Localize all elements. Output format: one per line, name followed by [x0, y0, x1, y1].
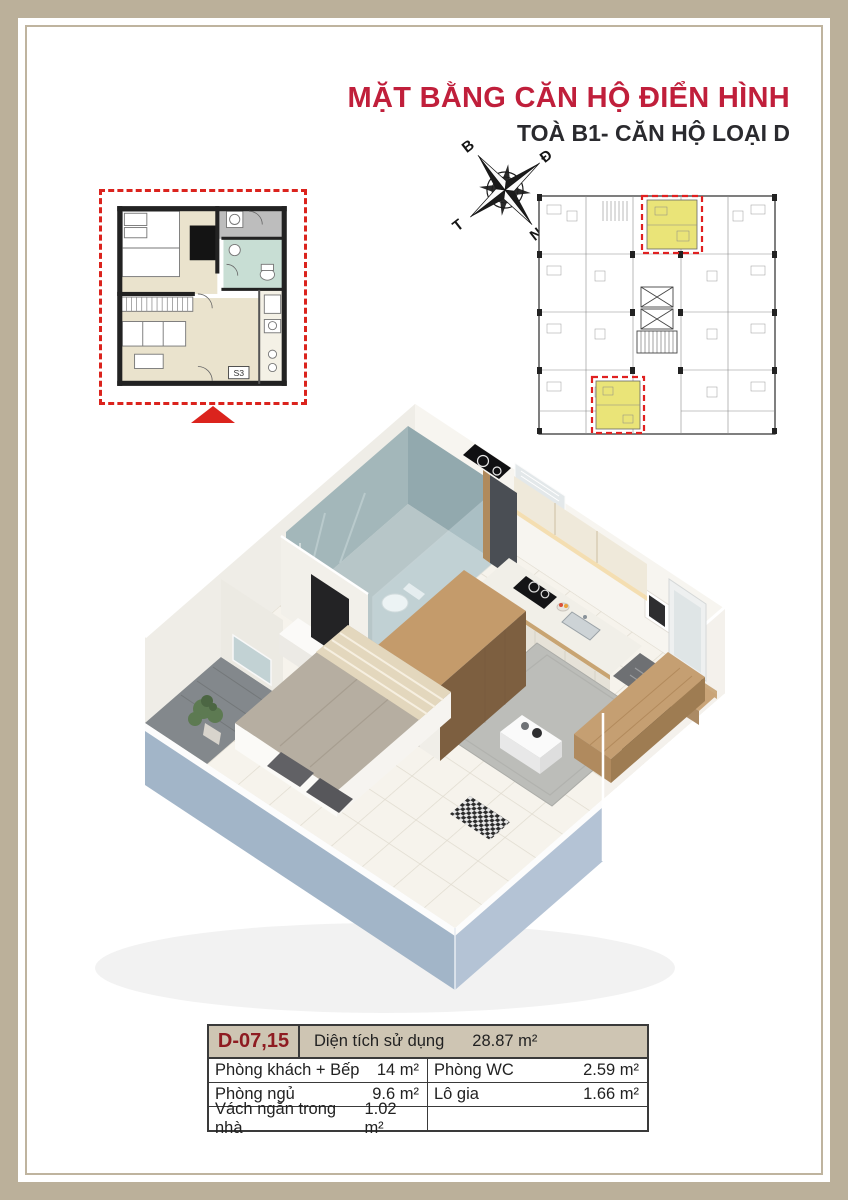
apartment-3d-render: [85, 393, 775, 1023]
unit-2d-plan: S3: [112, 201, 292, 391]
row-label: Phòng khách + Bếp: [215, 1061, 360, 1080]
row-label: Lô gia: [434, 1085, 479, 1104]
key-plan-highlight-unit-top: [642, 196, 702, 253]
total-area-value: 28.87 m²: [472, 1032, 537, 1051]
table-row: Lô gia 1.66 m²: [427, 1083, 647, 1107]
unit-spec-table: D-07,15 Diện tích sử dụng 28.87 m² Phòng…: [207, 1024, 649, 1132]
row-label: Phòng WC: [434, 1061, 514, 1080]
page-title: MẶT BẰNG CĂN HỘ ĐIỂN HÌNH: [348, 82, 791, 115]
compass-west-label: T: [449, 216, 467, 235]
row-value: 1.66 m²: [583, 1085, 639, 1104]
table-row: Phòng khách + Bếp 14 m²: [209, 1059, 427, 1083]
row-value: 1.02 m²: [364, 1100, 419, 1138]
row-value: 14 m²: [377, 1061, 419, 1080]
table-row: [427, 1107, 647, 1130]
plan-unit-tag: S3: [229, 366, 249, 378]
table-row: Phòng WC 2.59 m²: [427, 1059, 647, 1083]
spec-table-body: Phòng khách + Bếp 14 m² Phòng WC 2.59 m²…: [209, 1059, 647, 1130]
total-area-label: Diện tích sử dụng: [314, 1032, 444, 1051]
plan-wardrobe-block: [190, 226, 217, 261]
row-value: 2.59 m²: [583, 1061, 639, 1080]
unit-2d-plan-frame: S3: [99, 189, 307, 405]
compass-north-label: B: [459, 136, 478, 156]
unit-code: D-07,15: [209, 1026, 300, 1057]
spec-table-header: D-07,15 Diện tích sử dụng 28.87 m²: [209, 1026, 647, 1059]
table-row: Vách ngăn trong nhà 1.02 m²: [209, 1107, 427, 1130]
plan-unit-label: S3: [233, 368, 244, 378]
row-label: Vách ngăn trong nhà: [215, 1100, 364, 1138]
